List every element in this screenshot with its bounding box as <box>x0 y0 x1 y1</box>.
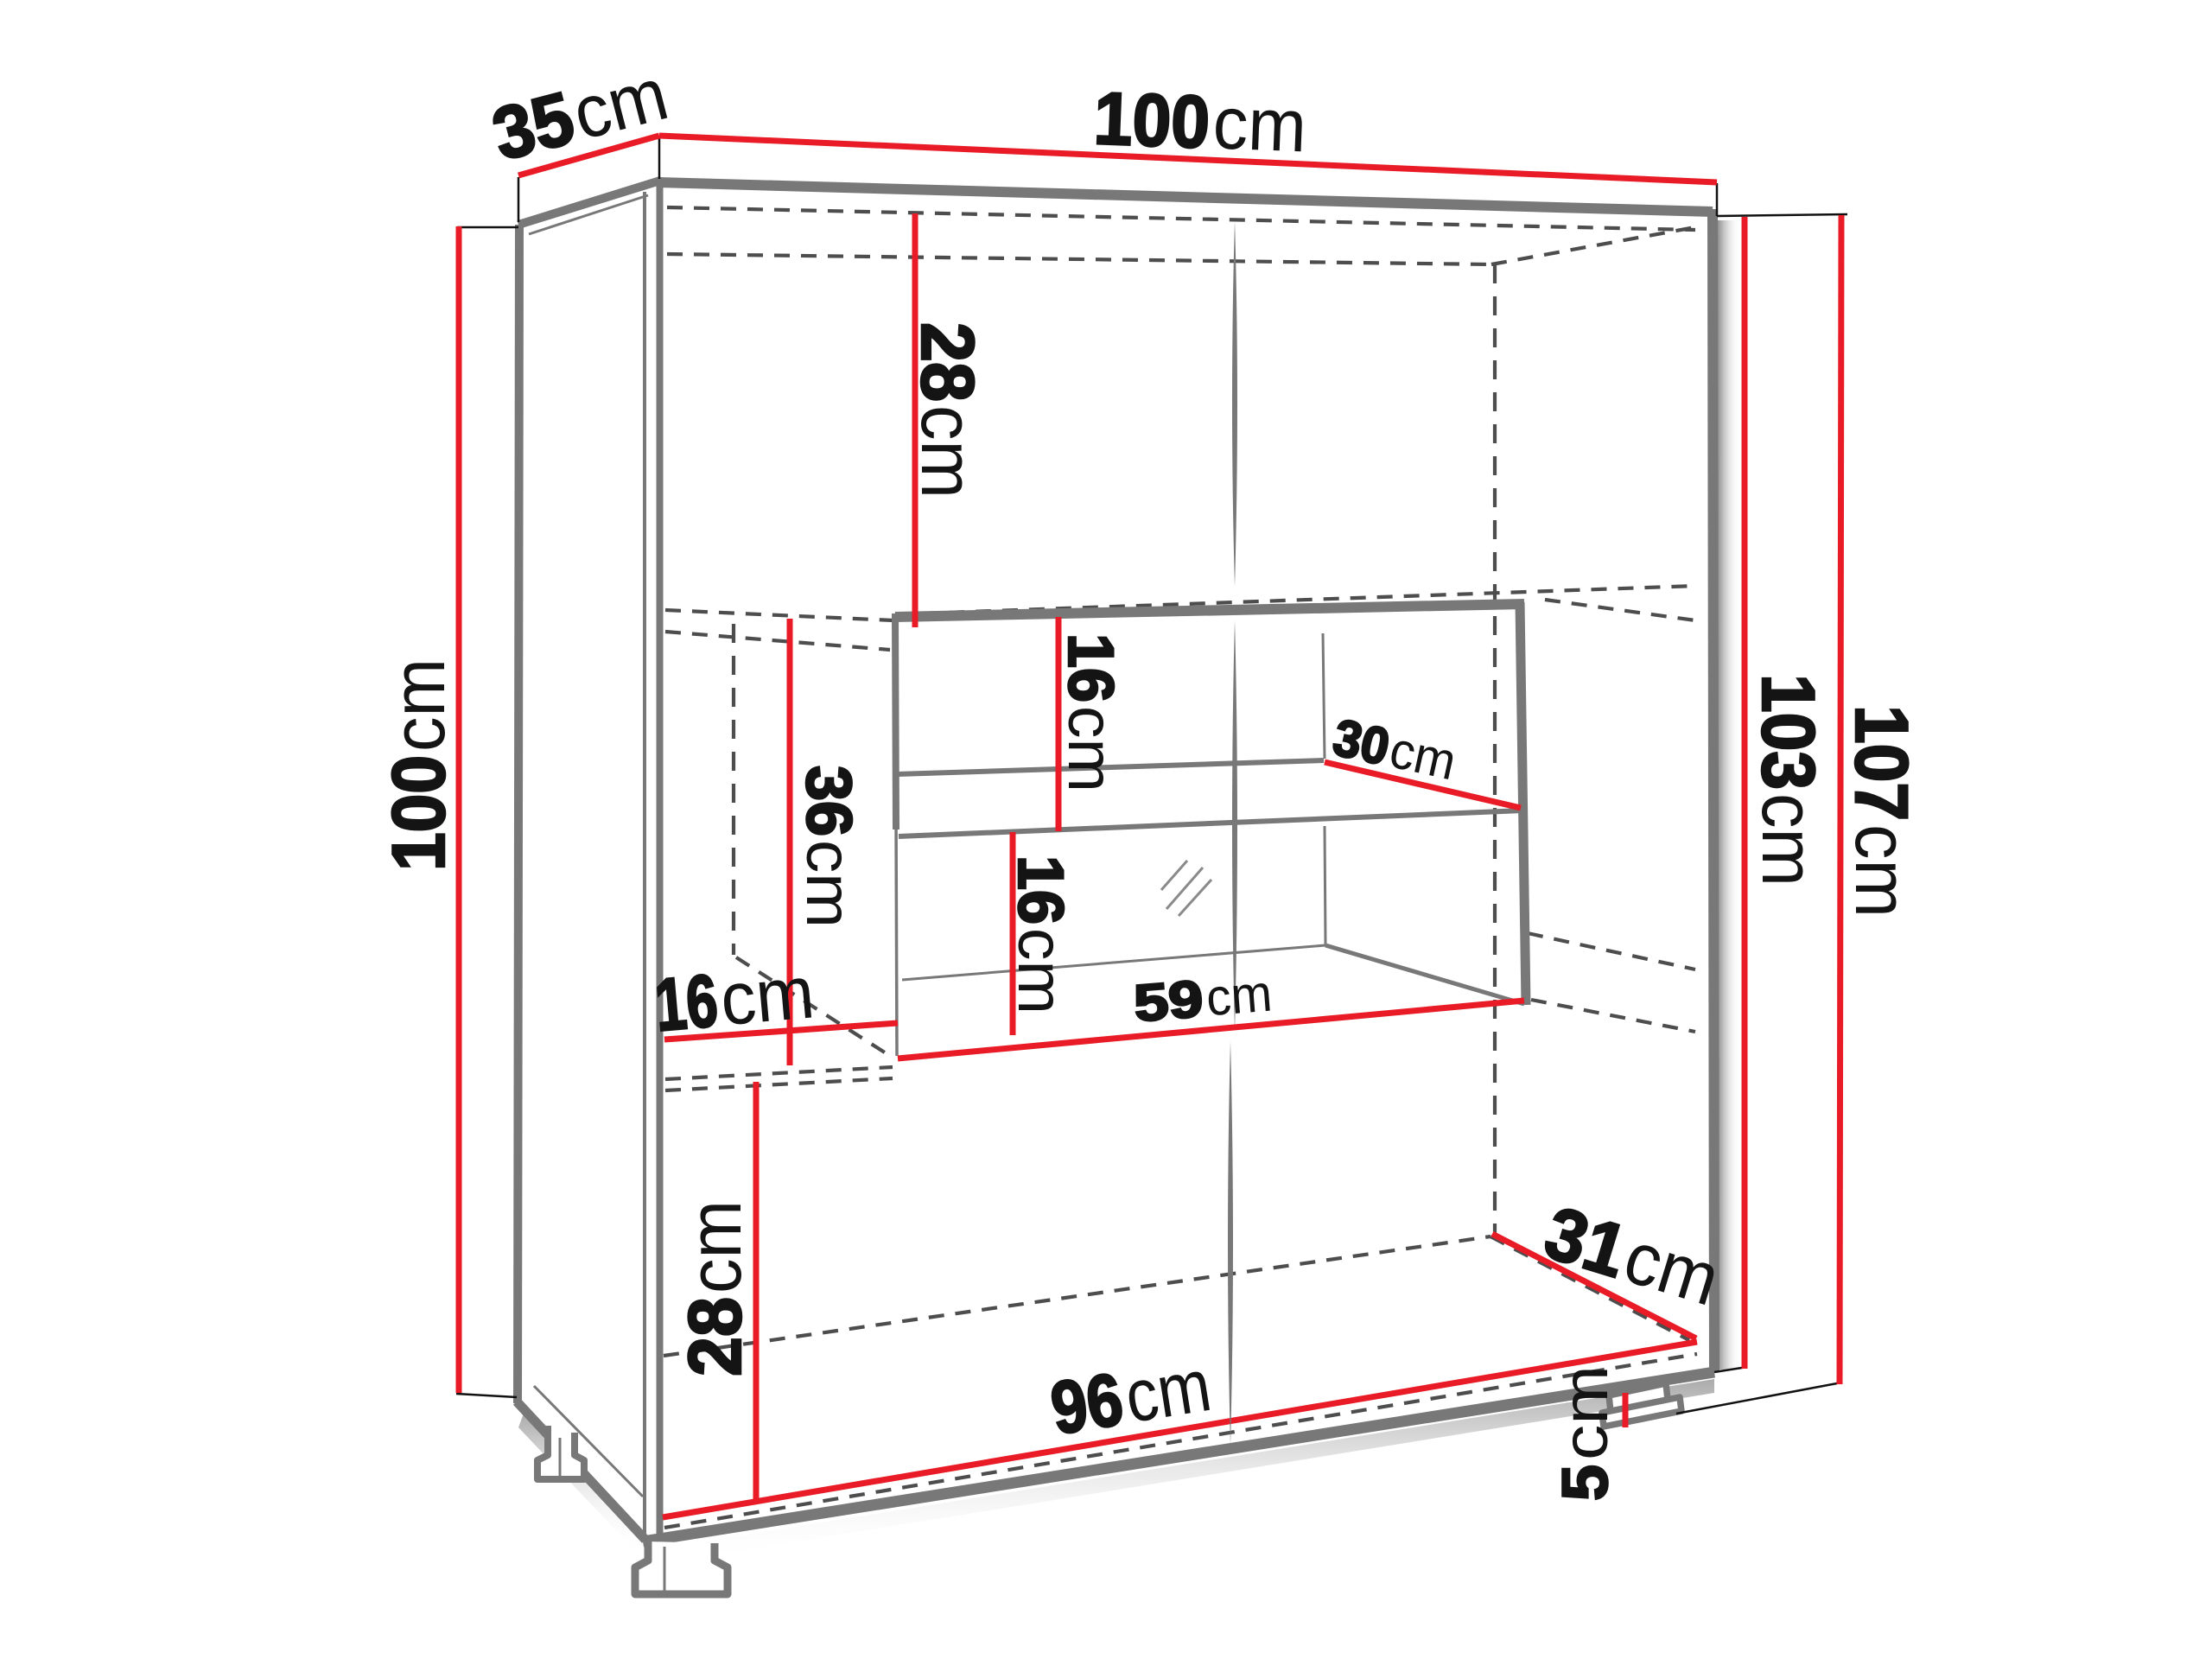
svg-text:cm: cm <box>1055 706 1127 792</box>
svg-text:cm: cm <box>717 950 817 1041</box>
svg-text:36: 36 <box>793 766 865 836</box>
svg-text:cm: cm <box>674 1200 757 1294</box>
svg-text:107: 107 <box>1840 705 1923 821</box>
svg-text:cm: cm <box>1746 793 1829 887</box>
svg-text:100: 100 <box>378 755 461 871</box>
svg-text:cm: cm <box>793 840 865 928</box>
svg-text:96: 96 <box>1046 1357 1128 1451</box>
svg-text:100: 100 <box>1092 77 1211 164</box>
svg-text:28: 28 <box>674 1297 757 1376</box>
svg-text:cm: cm <box>1120 1344 1217 1439</box>
svg-text:cm: cm <box>906 405 988 499</box>
svg-text:16: 16 <box>652 959 721 1047</box>
svg-text:cm: cm <box>378 658 461 752</box>
svg-text:cm: cm <box>1549 1365 1621 1460</box>
svg-text:103: 103 <box>1746 674 1829 790</box>
svg-text:16: 16 <box>1005 855 1077 925</box>
svg-text:cm: cm <box>1840 824 1923 918</box>
svg-text:cm: cm <box>1205 964 1274 1027</box>
svg-text:59: 59 <box>1132 969 1205 1033</box>
svg-text:cm: cm <box>1211 81 1308 168</box>
svg-text:16: 16 <box>1055 633 1127 702</box>
svg-text:28: 28 <box>906 322 988 402</box>
svg-text:cm: cm <box>1005 928 1077 1014</box>
svg-text:5: 5 <box>1549 1465 1621 1501</box>
